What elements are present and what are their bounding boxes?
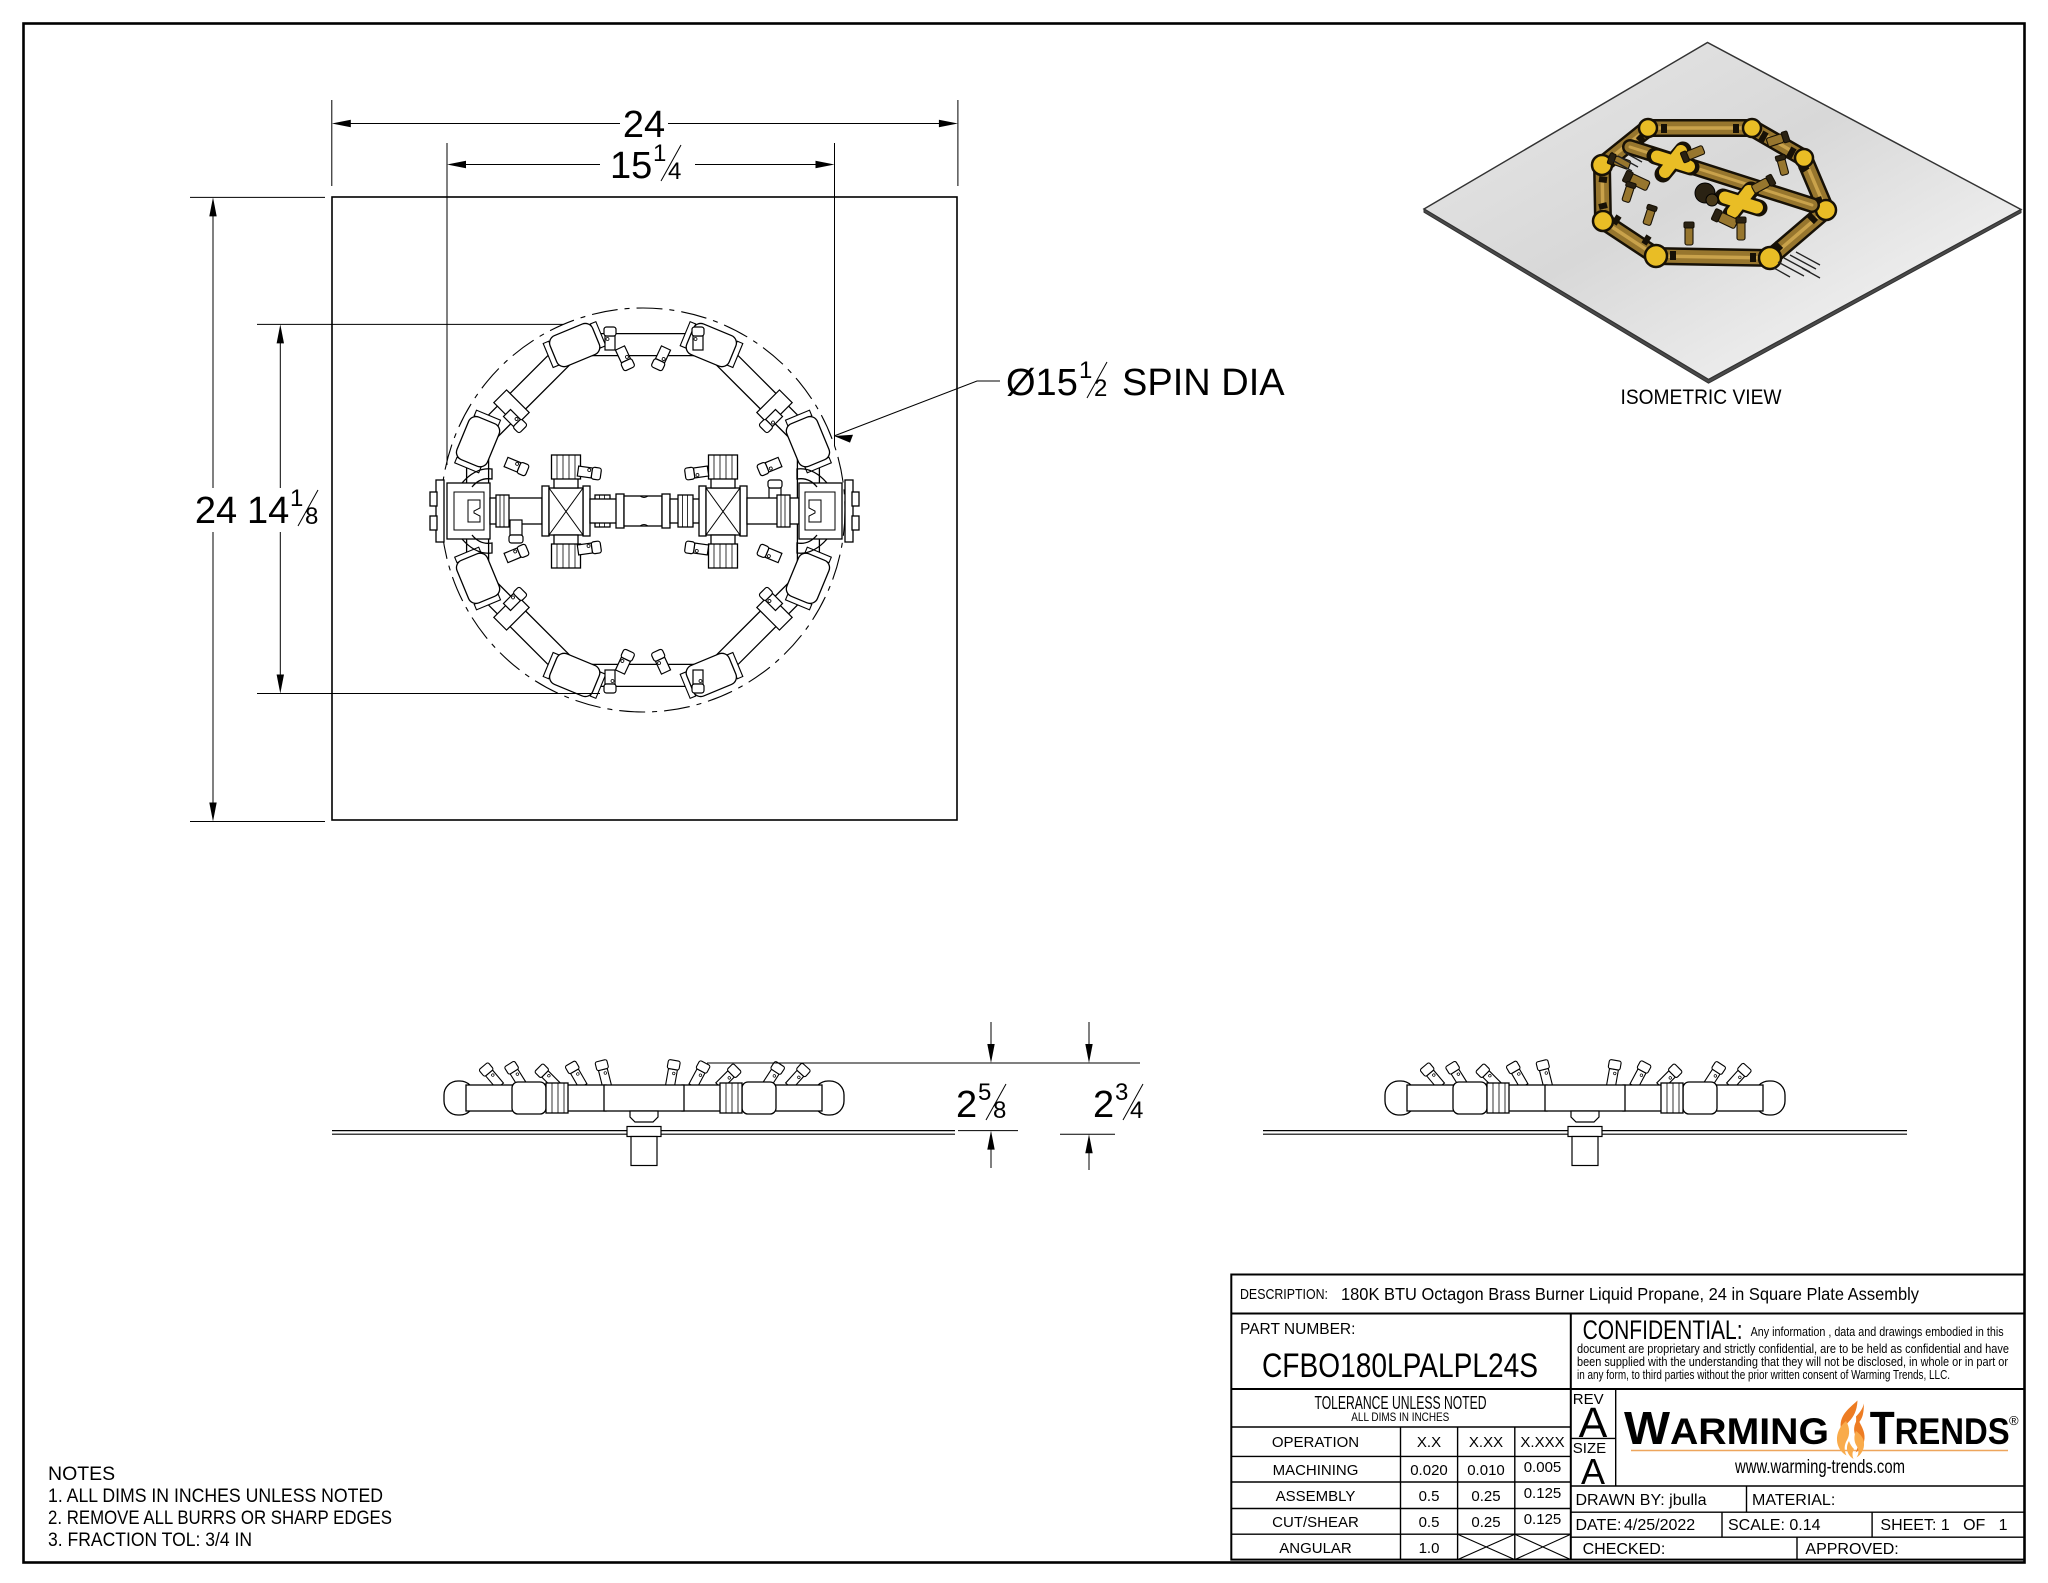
svg-text:0.5: 0.5	[1419, 1488, 1440, 1505]
svg-text:15: 15	[610, 145, 652, 187]
svg-text:A: A	[1581, 1451, 1605, 1492]
svg-text:CFBO180LPALPL24S: CFBO180LPALPL24S	[1262, 1347, 1538, 1385]
svg-text:APPROVED:: APPROVED:	[1805, 1541, 1898, 1558]
svg-text:8: 8	[993, 1097, 1006, 1124]
svg-text:CHECKED:: CHECKED:	[1583, 1541, 1666, 1558]
svg-text:DATE:: DATE:	[1576, 1517, 1622, 1534]
svg-text:X.X: X.X	[1417, 1434, 1441, 1451]
svg-text:180K BTU Octagon Brass Burner: 180K BTU Octagon Brass Burner Liquid Pro…	[1341, 1284, 1919, 1304]
svg-text:0.010: 0.010	[1467, 1462, 1505, 1479]
svg-text:4: 4	[1130, 1097, 1143, 1124]
svg-text:1: 1	[1079, 357, 1092, 384]
svg-text:14: 14	[247, 490, 289, 532]
svg-text:in any form, to third parties: in any form, to third parties without th…	[1577, 1367, 1950, 1382]
svg-text:1.0: 1.0	[1419, 1540, 1440, 1557]
svg-text:5: 5	[978, 1079, 991, 1106]
svg-text:PART NUMBER:: PART NUMBER:	[1240, 1321, 1355, 1338]
svg-text:4/25/2022: 4/25/2022	[1624, 1517, 1695, 1534]
svg-text:ASSEMBLY: ASSEMBLY	[1276, 1488, 1356, 1505]
svg-text:2: 2	[1093, 1084, 1114, 1126]
svg-text:0.005: 0.005	[1524, 1459, 1562, 1476]
svg-text:®: ®	[2009, 1413, 2019, 1428]
svg-text:3. FRACTION TOL: 3/4 IN: 3. FRACTION TOL: 3/4 IN	[48, 1529, 252, 1551]
svg-text:ALL DIMS IN INCHES: ALL DIMS IN INCHES	[1351, 1410, 1449, 1424]
svg-text:1: 1	[290, 485, 303, 512]
svg-text:2: 2	[956, 1084, 977, 1126]
svg-text:DRAWN BY: jbulla: DRAWN BY: jbulla	[1576, 1492, 1707, 1509]
svg-text:2. REMOVE ALL BURRS OR SHARP E: 2. REMOVE ALL BURRS OR SHARP EDGES	[48, 1507, 392, 1529]
svg-text:0.125: 0.125	[1524, 1511, 1562, 1528]
svg-text:0.5: 0.5	[1419, 1514, 1440, 1531]
svg-text:0.020: 0.020	[1410, 1462, 1448, 1479]
svg-text:1: 1	[653, 140, 666, 167]
svg-text:MACHINING: MACHINING	[1273, 1462, 1359, 1479]
svg-text:0.125: 0.125	[1524, 1485, 1562, 1502]
svg-text:OPERATION: OPERATION	[1272, 1434, 1359, 1451]
svg-text:1. ALL DIMS IN INCHES UNLESS N: 1. ALL DIMS IN INCHES UNLESS NOTED	[48, 1485, 383, 1507]
svg-text:0.25: 0.25	[1471, 1488, 1500, 1505]
svg-text:SHEET: 1 OF 1: SHEET: 1 OF 1	[1880, 1517, 2007, 1534]
svg-text:24: 24	[195, 490, 237, 532]
svg-text:X.XX: X.XX	[1469, 1434, 1503, 1451]
svg-text:NOTES: NOTES	[48, 1463, 115, 1485]
svg-text:SPIN DIA: SPIN DIA	[1122, 362, 1285, 404]
svg-text:Any information , data and dra: Any information , data and drawings embo…	[1751, 1324, 2004, 1339]
svg-text:0.25: 0.25	[1471, 1514, 1500, 1531]
svg-text:DESCRIPTION:: DESCRIPTION:	[1240, 1286, 1328, 1303]
svg-text:2: 2	[1094, 375, 1107, 402]
svg-text:www.warming-trends.com: www.warming-trends.com	[1734, 1456, 1905, 1478]
svg-text:ANGULAR: ANGULAR	[1279, 1540, 1352, 1557]
svg-text:ISOMETRIC VIEW: ISOMETRIC VIEW	[1621, 385, 1783, 409]
svg-text:8: 8	[305, 503, 318, 530]
svg-text:SCALE: 0.14: SCALE: 0.14	[1728, 1517, 1821, 1534]
svg-text:4: 4	[668, 158, 681, 185]
svg-text:Ø15: Ø15	[1006, 362, 1078, 404]
svg-text:MATERIAL:: MATERIAL:	[1752, 1492, 1835, 1509]
svg-text:CUT/SHEAR: CUT/SHEAR	[1272, 1514, 1359, 1531]
svg-text:3: 3	[1115, 1079, 1128, 1106]
svg-text:X.XXX: X.XXX	[1520, 1434, 1564, 1451]
